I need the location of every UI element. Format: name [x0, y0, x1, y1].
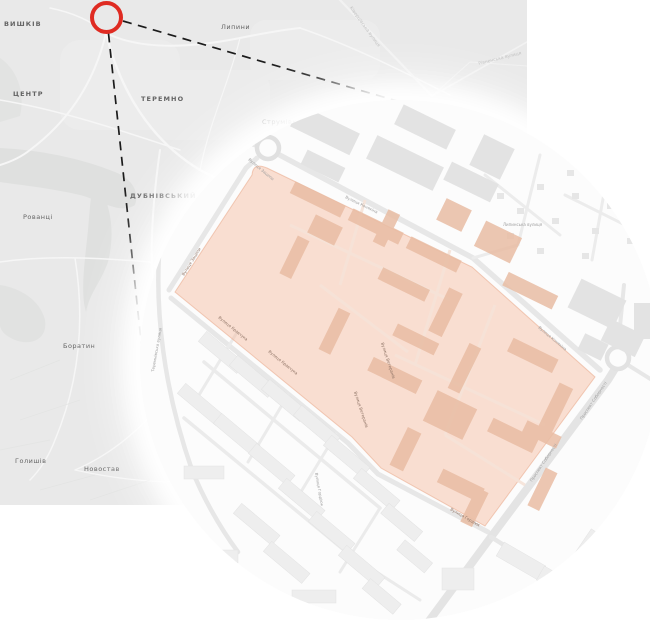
place-label-novostav: Новостав	[84, 465, 120, 473]
place-label-vyshkiv: ВИШКІВ	[4, 20, 42, 28]
inset-map-graphics: Вулиця Конякіна Вулиця Конякіна Проспект…	[140, 100, 650, 620]
roundabout-icon	[257, 137, 279, 159]
map-figure: { "overview": { "place_labels": [ {"text…	[0, 0, 650, 585]
street-label-lypynska: Липинська вулиця	[503, 222, 543, 227]
place-label-lypyny: Липини	[221, 23, 250, 31]
place-label-boratyn: Боратин	[63, 342, 95, 350]
place-label-tsentr: ЦЕНТР	[13, 90, 44, 98]
place-label-rovantsi: Рованці	[23, 213, 53, 221]
location-marker-circle	[90, 1, 123, 34]
place-label-teremno: ТЕРЕМНО	[141, 95, 184, 103]
inset-map: Вулиця Конякіна Вулиця Конякіна Проспект…	[140, 100, 650, 620]
place-label-holyshiv: Голишів	[15, 457, 46, 465]
place-label-dubnivskyi: ДУБНІВСЬКИЙ	[130, 192, 197, 200]
